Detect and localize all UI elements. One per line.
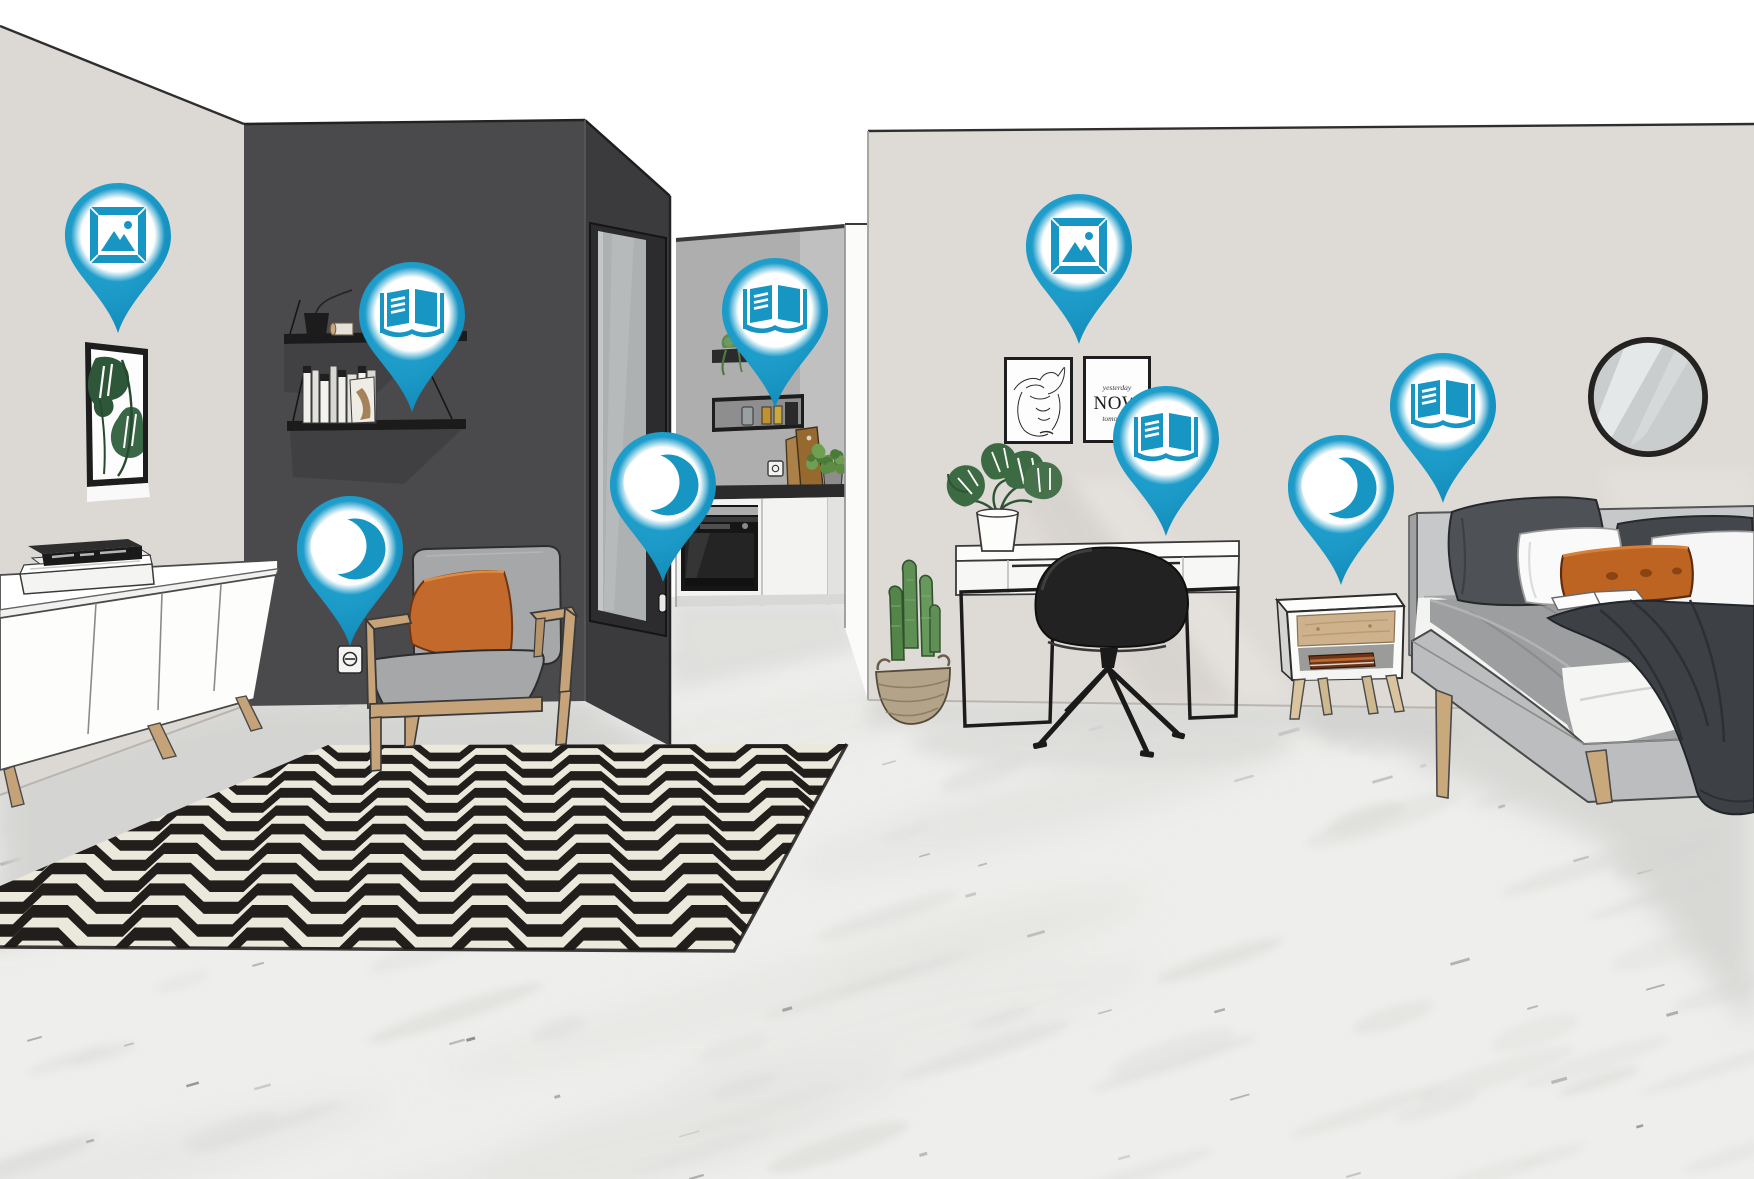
svg-text:yesterday: yesterday — [1102, 383, 1132, 392]
